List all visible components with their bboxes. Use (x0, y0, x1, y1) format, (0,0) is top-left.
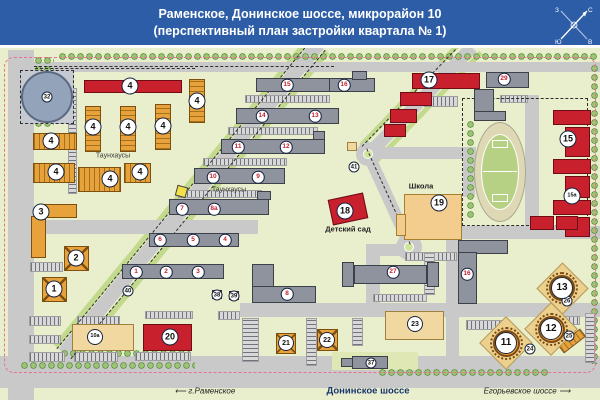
building (72, 324, 134, 351)
marker-number: 25 (564, 331, 575, 342)
building (384, 124, 406, 137)
building (352, 71, 367, 80)
building (530, 216, 554, 230)
building (236, 108, 339, 124)
compass-rose-icon: С З Ю В (554, 2, 594, 46)
building-number: 22 (319, 332, 335, 348)
building-number: 13 (309, 110, 322, 123)
building-number: 1 (130, 266, 143, 279)
stadium-goal-box (492, 140, 508, 148)
building (313, 131, 325, 140)
building-number: 15 (560, 131, 577, 148)
building-number: 11 (232, 141, 245, 154)
stadium-midline (483, 171, 517, 172)
road-label: Егорьевское шоссе ⟶ (484, 387, 571, 396)
building-number: 3 (192, 266, 205, 279)
building-number: 4 (132, 164, 149, 181)
building-number: 4 (43, 133, 60, 150)
plan-map: 44444444432110а202122231819171515а151413… (0, 0, 600, 400)
compass-east-label: В (588, 39, 592, 46)
building-number: 8а (208, 203, 221, 216)
area-label: Таунхаусы (96, 153, 130, 160)
building-number: 16 (338, 79, 351, 92)
building (341, 358, 353, 367)
marker-number: 32 (42, 92, 53, 103)
building (347, 142, 357, 151)
building (553, 110, 591, 125)
building-number: 19 (431, 195, 448, 212)
site-plan-screenshot: 44444444432110а202122231819171515а151413… (0, 0, 600, 400)
building-number: 15 (281, 79, 294, 92)
building (390, 109, 417, 123)
marker-number: 39 (229, 291, 240, 302)
tower-number: 12 (540, 318, 562, 340)
building-number: 14 (256, 110, 269, 123)
building-number: 4 (219, 234, 232, 247)
marker-number: 24 (525, 344, 536, 355)
building-number: 4 (102, 171, 119, 188)
road-label: Донинское шоссе (326, 386, 409, 397)
building-number: 10а (87, 329, 103, 345)
building (556, 216, 578, 230)
building (400, 92, 432, 106)
building-number: 2 (160, 266, 173, 279)
building-number: 4 (122, 78, 139, 95)
building-number: 10 (207, 171, 220, 184)
building (342, 262, 354, 287)
building-number: 6 (154, 234, 167, 247)
area-label: Школа (409, 182, 434, 191)
compass-south-label: Ю (555, 39, 562, 46)
building-number: 20 (162, 329, 179, 346)
title-bar: Раменское, Донинское шоссе, микрорайон 1… (0, 0, 600, 48)
building-number: 7 (176, 203, 189, 216)
plan-title-line1: Раменское, Донинское шоссе, микрорайон 1… (158, 6, 441, 22)
building-number: 2 (68, 250, 85, 267)
building-number: 8 (281, 288, 294, 301)
area-label: Детский сад (325, 225, 371, 234)
building-number: 4 (85, 119, 102, 136)
building (257, 191, 271, 200)
plan-title-line2: (перспективный план застройки квартала №… (154, 23, 447, 39)
building-number: 17 (421, 72, 438, 89)
stadium-goal-box (492, 194, 508, 202)
marker-number: 38 (212, 290, 223, 301)
building (474, 89, 494, 113)
tower-number: 11 (495, 332, 517, 354)
road-label: ⟵ г.Раменское (175, 387, 236, 396)
building (396, 214, 406, 236)
building-number: 29 (498, 73, 511, 86)
building (474, 111, 506, 121)
building-number: 9 (252, 171, 265, 184)
area-label: Таунхаусы (212, 187, 246, 194)
building-number: 1 (46, 281, 63, 298)
building-number: 18 (337, 203, 354, 220)
compass-north-label: С (588, 7, 593, 14)
building-number: 16 (461, 268, 474, 281)
building-number: 21 (278, 335, 294, 351)
building-number: 4 (120, 119, 137, 136)
building-number: 3 (33, 204, 50, 221)
marker-number: 41 (349, 162, 360, 173)
building-number: 5 (187, 234, 200, 247)
building (427, 262, 439, 287)
building-number: 4 (189, 93, 206, 110)
building (31, 216, 46, 258)
building-number: 27 (387, 266, 400, 279)
building-number: 4 (48, 164, 65, 181)
marker-number: 40 (123, 286, 134, 297)
compass-west-label: З (555, 7, 559, 14)
building-number: 15а (564, 188, 581, 205)
tower-number: 13 (551, 277, 573, 299)
building (252, 264, 274, 288)
building (329, 78, 375, 92)
building-number: 23 (407, 316, 423, 332)
building-number: 4 (155, 118, 172, 135)
building-number: 12 (280, 141, 293, 154)
building (553, 159, 591, 174)
marker-number: 37 (366, 358, 377, 369)
